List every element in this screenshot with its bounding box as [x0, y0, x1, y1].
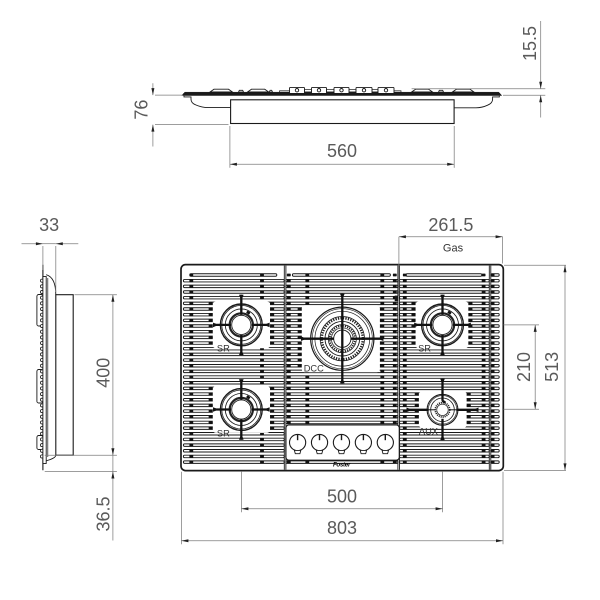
svg-text:560: 560 — [327, 141, 357, 161]
svg-text:76: 76 — [132, 100, 152, 120]
svg-text:Gas: Gas — [443, 242, 464, 254]
svg-text:15.5: 15.5 — [520, 26, 540, 61]
svg-text:DCC: DCC — [304, 364, 324, 374]
svg-text:SR: SR — [418, 344, 431, 354]
svg-text:Foster: Foster — [333, 462, 351, 469]
svg-text:500: 500 — [327, 487, 357, 507]
svg-text:400: 400 — [94, 358, 114, 388]
svg-text:803: 803 — [327, 518, 357, 538]
svg-text:513: 513 — [542, 352, 562, 382]
svg-text:SR: SR — [217, 344, 230, 354]
svg-text:210: 210 — [514, 352, 534, 382]
svg-text:261.5: 261.5 — [428, 215, 473, 235]
svg-text:AUX: AUX — [419, 426, 438, 436]
svg-text:36.5: 36.5 — [93, 496, 113, 531]
svg-text:33: 33 — [39, 215, 59, 235]
svg-text:SR: SR — [217, 428, 230, 438]
